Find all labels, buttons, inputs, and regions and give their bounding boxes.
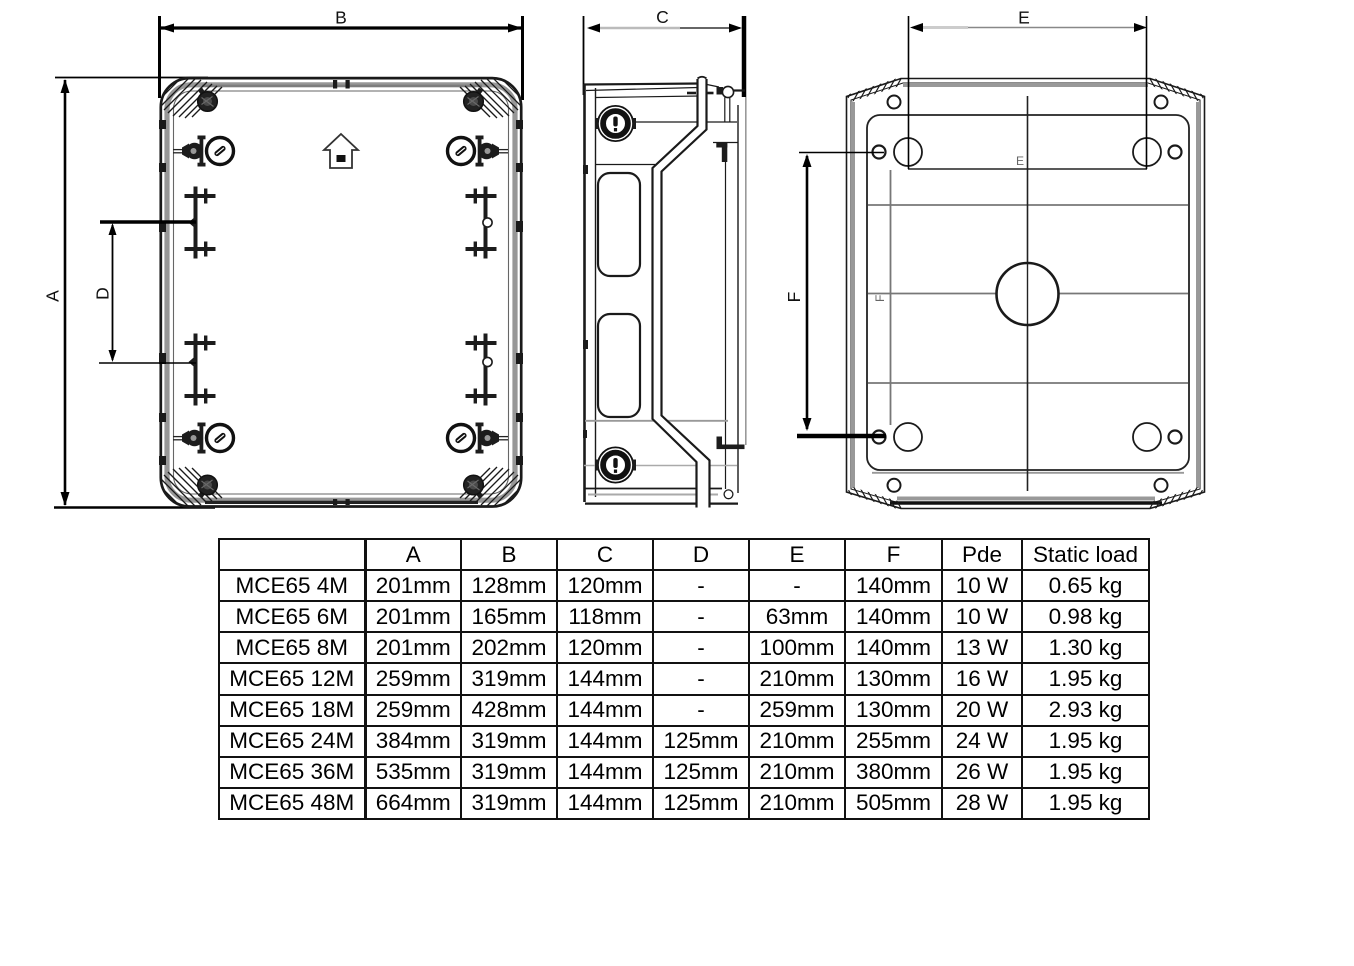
svg-text:F: F <box>873 295 887 302</box>
svg-text:D: D <box>93 287 113 300</box>
svg-text:E: E <box>1016 154 1024 168</box>
svg-text:C: C <box>656 7 669 27</box>
svg-text:E: E <box>1018 8 1030 28</box>
svg-text:B: B <box>335 8 347 28</box>
svg-text:F: F <box>784 292 804 303</box>
svg-text:A: A <box>42 290 62 302</box>
